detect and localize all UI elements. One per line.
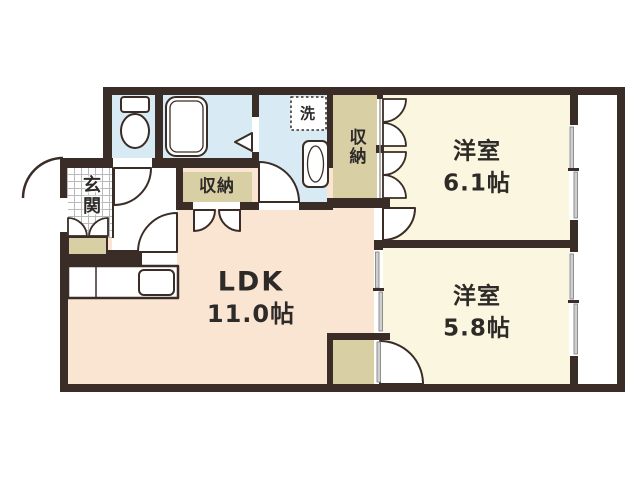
bedroom2-closet-door-swing-icon: [380, 341, 423, 384]
front-door-swing-icon: [23, 158, 63, 198]
hall-door-swing-icon: [138, 213, 177, 252]
entrance-label: 玄関: [81, 175, 99, 217]
hall-closet-door-right-icon: [219, 210, 240, 231]
bifold-door-3-icon: [383, 152, 406, 175]
toilet-tank-icon: [121, 97, 149, 112]
window2-meeting-stile: [568, 300, 579, 303]
window1-pane-b: [574, 172, 578, 218]
stove-icon: [139, 270, 174, 295]
ldk-area-label: 11.0帖: [207, 302, 295, 326]
window2-pane-b: [574, 304, 578, 354]
bedroom1-door-swing-icon: [383, 208, 415, 240]
symbol-layer: [0, 0, 640, 480]
bifold-door-4-icon: [383, 175, 406, 198]
hall-closet-door-left-icon: [194, 210, 215, 231]
window1-meeting-stile: [568, 168, 579, 171]
bathtub-icon: [166, 97, 207, 156]
bedroom1-name-label: 洋室: [453, 141, 501, 164]
bifold-door-2-icon: [383, 123, 406, 146]
sink-icon: [303, 141, 328, 187]
ldk-name-label: LDK: [218, 269, 285, 296]
slider-pane-a: [376, 252, 380, 288]
bifold-door-1-icon: [383, 99, 406, 122]
bedroom2-name-label: 洋室: [453, 286, 501, 309]
bedroom2-area-label: 5.8帖: [443, 318, 511, 341]
toilet-door-swing-icon: [114, 168, 151, 205]
shoe-cabinet-door-right-icon: [89, 218, 108, 236]
toilet-bowl-icon: [121, 114, 149, 148]
washroom-door-swing-icon: [259, 162, 299, 202]
window1-pane-a: [570, 127, 574, 169]
bedroom1-area-label: 6.1帖: [443, 173, 511, 196]
washer-space-label: 洗: [300, 107, 316, 122]
slider-pane-b: [379, 292, 383, 331]
closet-hall-label: 収納: [199, 179, 235, 196]
bath-folding-door-icon: [235, 133, 252, 151]
window2-pane-a: [570, 254, 574, 299]
shoe-cabinet-door-left-icon: [68, 218, 87, 236]
slider-meeting-stile: [373, 288, 384, 291]
floorplan-canvas: 洋室 6.1帖 洋室 5.8帖 LDK 11.0帖 収納 収納 玄関 洗: [0, 0, 640, 480]
closet-bedroom1-label: 収納: [347, 128, 364, 166]
closet2-track: [377, 342, 381, 382]
